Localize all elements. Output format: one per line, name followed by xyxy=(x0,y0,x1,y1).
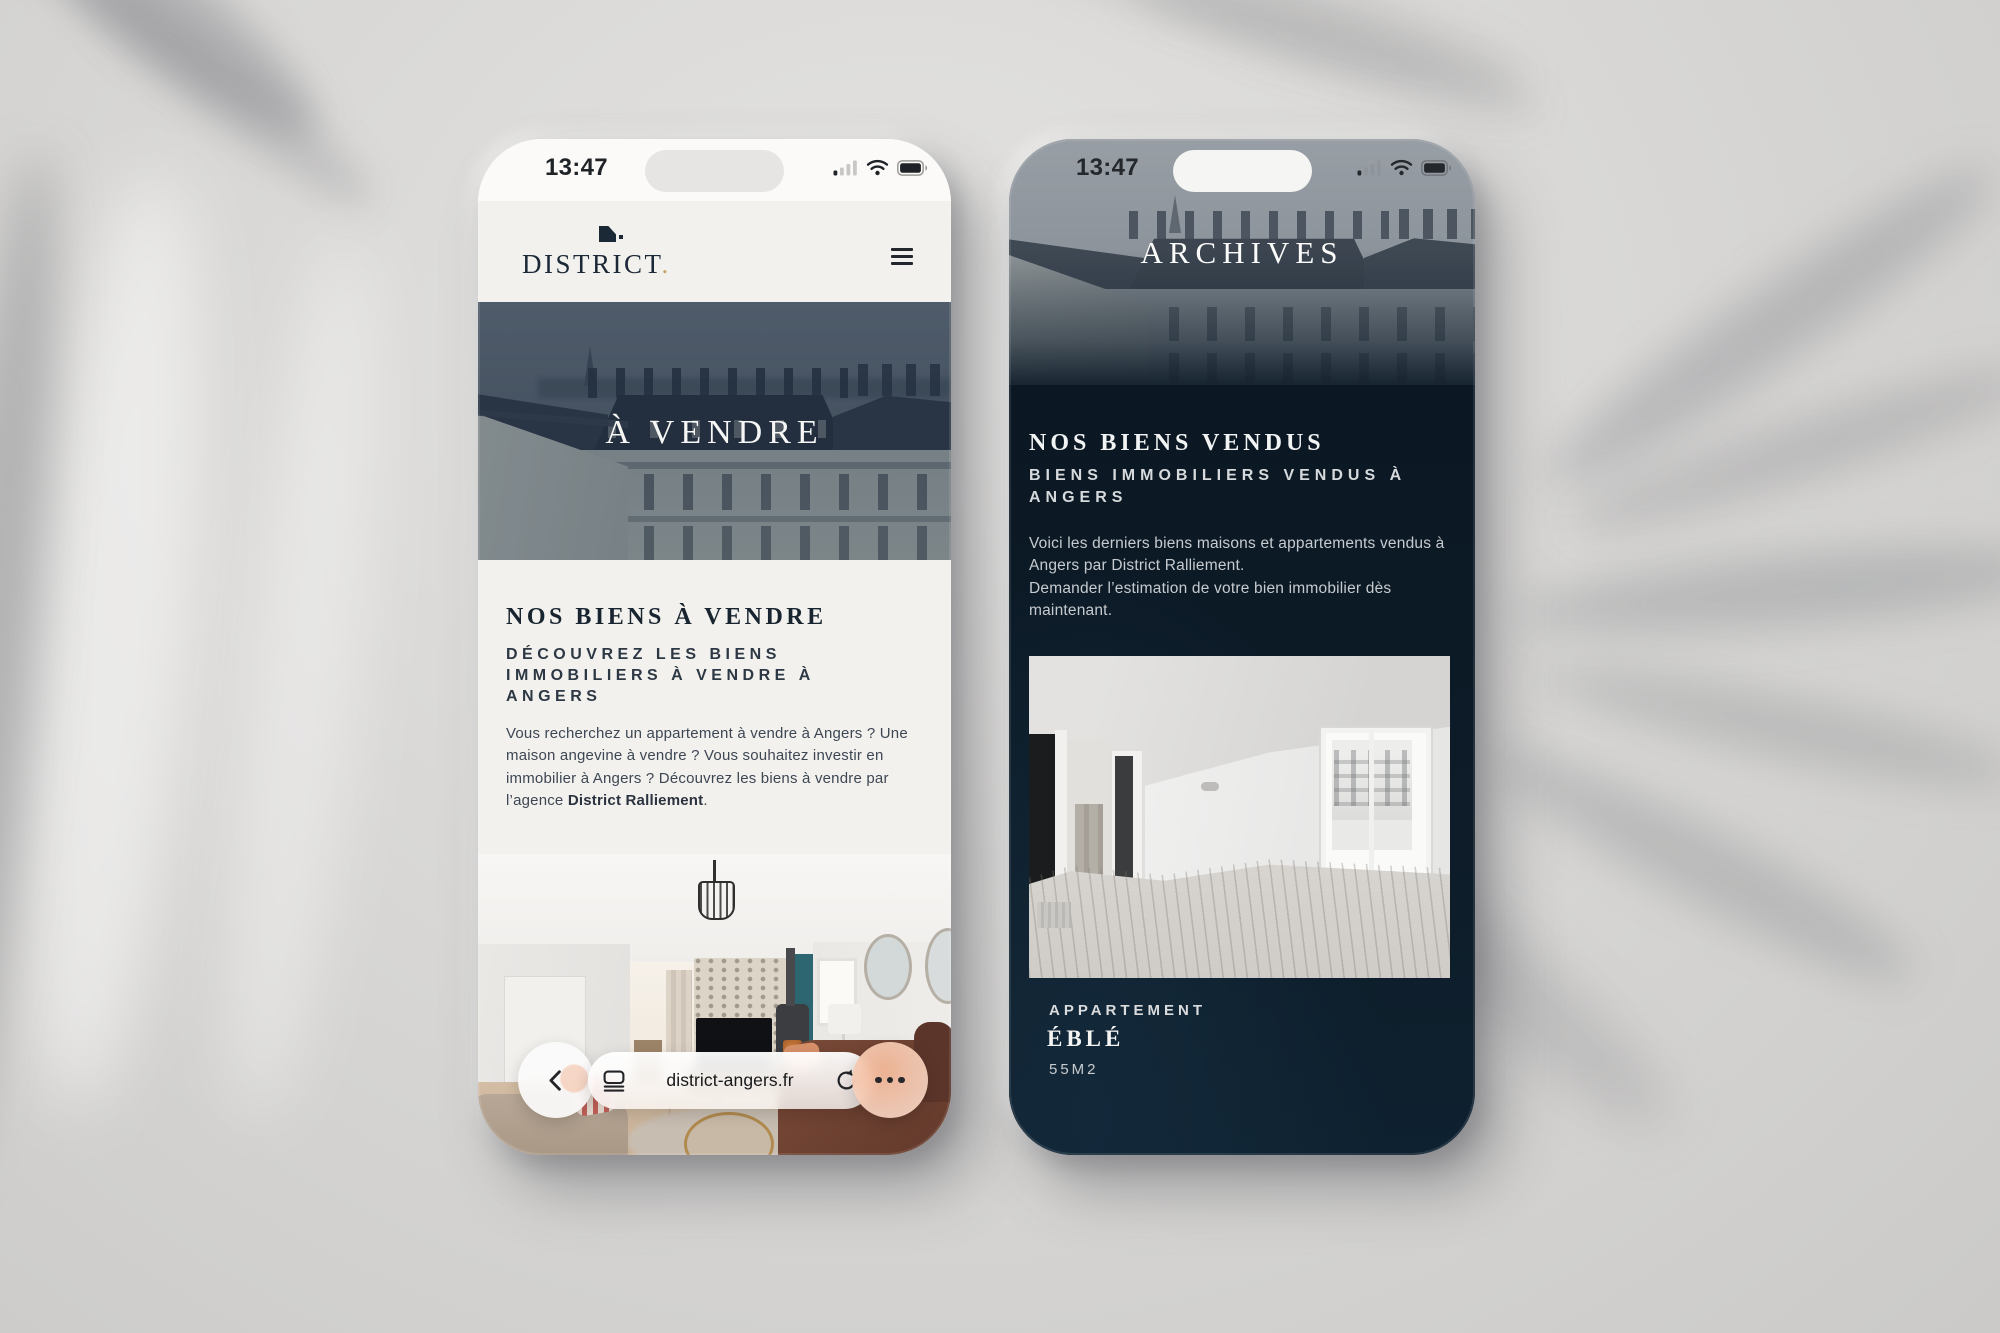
palm-shadow xyxy=(1557,346,2000,556)
paragraph-line: Demander l’estimation de votre bien immo… xyxy=(1029,578,1455,623)
window-light xyxy=(0,165,231,1114)
leaf-shadow xyxy=(962,0,1538,120)
dynamic-island xyxy=(1173,150,1312,192)
brand-text: DISTRICT xyxy=(522,249,662,279)
palm-shadow xyxy=(1534,645,2000,808)
round-mirror xyxy=(864,934,912,1000)
browser-back-button[interactable] xyxy=(518,1042,594,1118)
hero-image: À VENDRE xyxy=(478,302,951,560)
listing-area: 55M2 xyxy=(1049,1061,1099,1078)
palm-shadow xyxy=(1481,724,1930,1008)
ceiling-lamp-cage xyxy=(698,881,735,920)
window-shadow xyxy=(0,148,80,1191)
hero-title: À VENDRE xyxy=(478,414,951,452)
left-phone: 13:47 xyxy=(478,139,951,1155)
listing-category: APPARTEMENT xyxy=(1049,1002,1206,1019)
chevron-left-icon xyxy=(543,1067,570,1094)
window-light xyxy=(199,236,405,1123)
brand-logo-icon xyxy=(599,226,616,242)
brand-wordmark[interactable]: DISTRICT. xyxy=(522,249,671,280)
dynamic-island xyxy=(645,150,784,192)
sold-section: NOS BIENS VENDUS BIENS IMMOBILIERS VENDU… xyxy=(1009,385,1475,1155)
section-subheading: BIENS IMMOBILIERS VENDUS À ANGERS xyxy=(1029,465,1453,509)
paragraph-suffix: . xyxy=(703,792,707,809)
battery-icon xyxy=(897,160,928,176)
browser-address-bar[interactable]: district-angers.fr xyxy=(588,1052,873,1109)
section-heading: NOS BIENS À VENDRE xyxy=(506,604,827,631)
wifi-icon xyxy=(866,159,889,176)
leaf-shadow xyxy=(51,0,389,227)
status-bar: 13:47 xyxy=(478,139,951,201)
sold-property-photo[interactable] xyxy=(1029,656,1450,978)
status-time: 13:47 xyxy=(545,154,608,182)
leaf-shadow xyxy=(1122,0,1548,139)
section-paragraph: Vous recherchez un appartement à vendre … xyxy=(506,723,920,813)
hamburger-menu-icon[interactable] xyxy=(891,248,913,269)
stove-pipe xyxy=(786,948,795,1006)
signal-icon xyxy=(1357,159,1382,176)
ellipsis-icon xyxy=(875,1077,905,1084)
listing-name[interactable]: ÉBLÉ xyxy=(1047,1026,1124,1052)
browser-toolbar: district-angers.fr xyxy=(478,1042,951,1120)
brand-logo-dot-icon xyxy=(619,235,623,239)
archives-hero: ARCHIVES 13:47 xyxy=(1009,139,1475,385)
leaf-shadow xyxy=(0,0,344,167)
paragraph-line: Voici les derniers biens maisons et appa… xyxy=(1029,533,1455,578)
radiator xyxy=(1037,902,1071,928)
wall-sconce xyxy=(1201,782,1219,791)
brand-dot: . xyxy=(662,249,671,279)
browser-more-button[interactable] xyxy=(852,1042,928,1118)
palm-shadow xyxy=(1518,532,2000,650)
archives-title: ARCHIVES xyxy=(1009,235,1475,271)
right-phone: ARCHIVES 13:47 xyxy=(1009,139,1475,1155)
section-paragraph: Voici les derniers biens maisons et appa… xyxy=(1029,533,1455,622)
palm-shadow xyxy=(1527,142,2000,513)
url-text[interactable]: district-angers.fr xyxy=(635,1070,825,1091)
paragraph-bold-agency: District Ralliement xyxy=(568,792,704,809)
backdrop: 13:47 xyxy=(0,0,2000,1333)
ceiling-lamp-cord xyxy=(713,860,716,882)
site-header: DISTRICT. xyxy=(478,201,951,302)
window-mullion xyxy=(1369,730,1374,882)
section-subheading: DÉCOUVREZ LES BIENS IMMOBILIERS À VENDRE… xyxy=(506,644,876,707)
wifi-icon xyxy=(1390,159,1413,176)
listings-intro-section: NOS BIENS À VENDRE DÉCOUVREZ LES BIENS I… xyxy=(478,560,951,855)
section-heading: NOS BIENS VENDUS xyxy=(1029,430,1325,457)
battery-icon xyxy=(1421,160,1452,176)
signal-icon xyxy=(833,159,858,176)
floor-lamp-shade xyxy=(828,1004,861,1034)
status-time: 13:47 xyxy=(1076,154,1139,182)
reader-page-icon[interactable] xyxy=(602,1069,626,1093)
